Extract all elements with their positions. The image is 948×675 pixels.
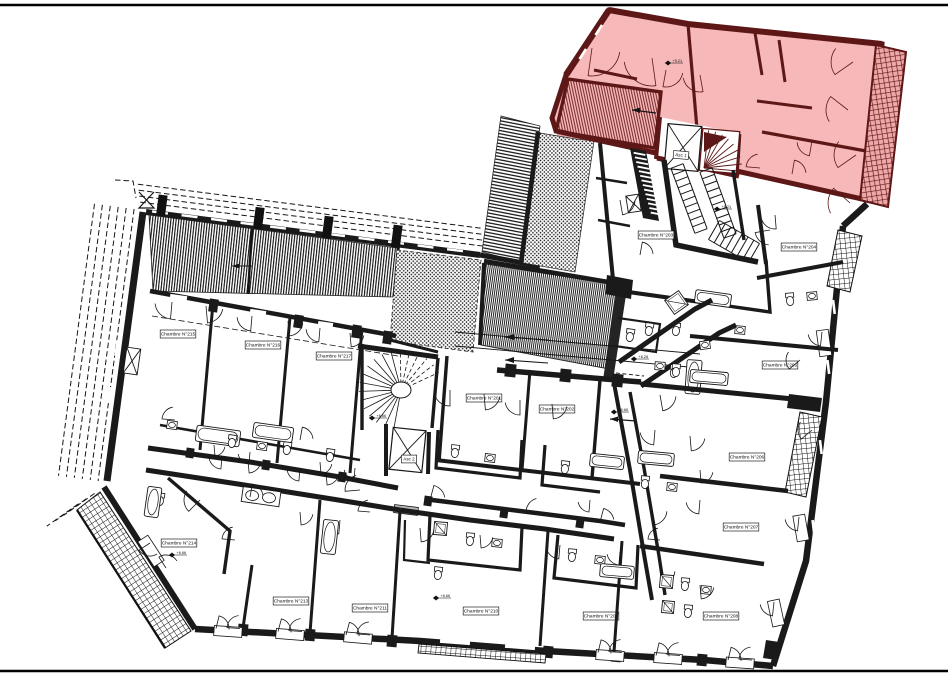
svg-text:+5.21: +5.21: [673, 59, 683, 63]
svg-text:Chambre N°209: Chambre N°209: [584, 614, 619, 620]
svg-text:+6.66: +6.66: [619, 408, 629, 412]
svg-text:+6.66: +6.66: [377, 414, 387, 418]
svg-text:+6.28: +6.28: [639, 355, 649, 359]
svg-text:Chambre N°208: Chambre N°208: [704, 614, 739, 620]
svg-text:Chambre N°207: Chambre N°207: [724, 525, 759, 531]
svg-text:Chambre N°214: Chambre N°214: [162, 541, 197, 547]
svg-text:Chambre N°210: Chambre N°210: [464, 609, 499, 615]
svg-text:Chambre N°206: Chambre N°206: [730, 455, 765, 461]
svg-text:Asc 2: Asc 2: [403, 457, 415, 462]
svg-text:+5.21: +5.21: [722, 205, 732, 209]
svg-text:+6.66: +6.66: [441, 594, 451, 598]
svg-text:Chambre N°205: Chambre N°205: [763, 363, 798, 369]
svg-text:Chambre N°202: Chambre N°202: [540, 407, 575, 413]
svg-text:Chambre N°217: Chambre N°217: [317, 354, 352, 360]
svg-text:Chambre N°203: Chambre N°203: [639, 233, 674, 239]
svg-text:Asc 1: Asc 1: [675, 152, 687, 158]
svg-text:+6.66: +6.66: [177, 551, 187, 555]
svg-text:Chambre N°211: Chambre N°211: [353, 606, 387, 612]
svg-text:Chambre N°216: Chambre N°216: [246, 343, 281, 349]
svg-text:Chambre N°204: Chambre N°204: [782, 245, 817, 251]
svg-text:Chambre N°213: Chambre N°213: [274, 599, 309, 605]
svg-text:Chambre N°215: Chambre N°215: [161, 332, 196, 338]
